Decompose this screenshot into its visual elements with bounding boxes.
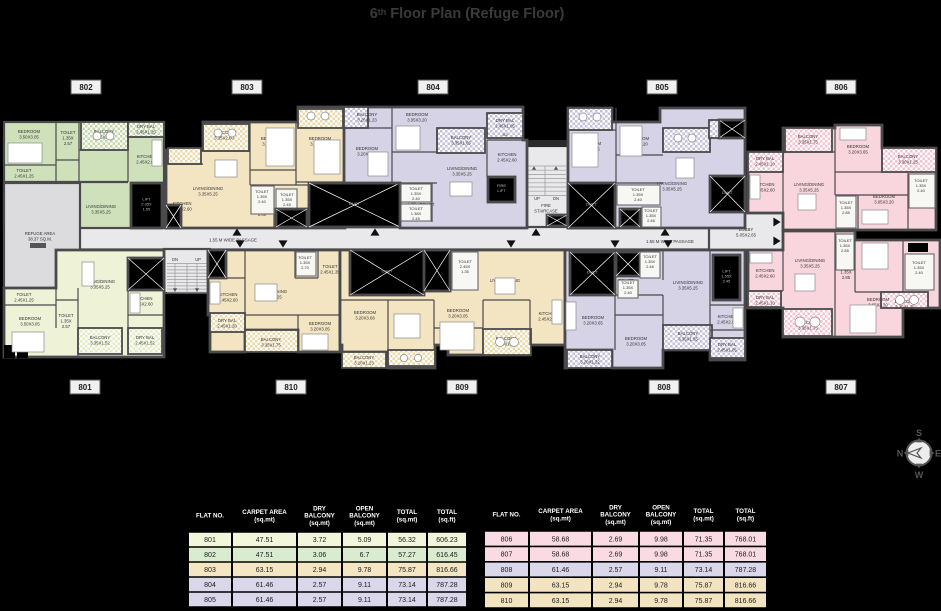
svg-text:3.65X3.20: 3.65X3.20 bbox=[874, 200, 894, 205]
svg-text:D2: D2 bbox=[502, 132, 508, 137]
svg-text:DN: DN bbox=[172, 257, 178, 262]
svg-text:BEDROOM: BEDROOM bbox=[873, 194, 896, 199]
svg-text:DUCT: DUCT bbox=[349, 201, 361, 206]
svg-text:BALCONY: BALCONY bbox=[261, 337, 282, 342]
svg-text:816.66: 816.66 bbox=[735, 583, 757, 590]
svg-text:2.94: 2.94 bbox=[313, 567, 327, 574]
svg-text:9.78: 9.78 bbox=[654, 583, 668, 590]
svg-text:DN: DN bbox=[553, 196, 559, 201]
svg-text:802: 802 bbox=[204, 552, 216, 559]
svg-text:2.45X1.35: 2.45X1.35 bbox=[320, 270, 340, 275]
svg-text:73.14: 73.14 bbox=[398, 597, 416, 604]
svg-text:S: S bbox=[916, 428, 922, 438]
svg-text:2.57: 2.57 bbox=[313, 582, 327, 589]
svg-text:768.01: 768.01 bbox=[735, 536, 757, 543]
svg-text:3.20X3.65: 3.20X3.65 bbox=[583, 321, 603, 326]
svg-text:75.87: 75.87 bbox=[695, 583, 713, 590]
svg-text:(sq.mt): (sq.mt) bbox=[693, 515, 714, 522]
svg-text:2.85: 2.85 bbox=[842, 275, 851, 280]
svg-text:1.55: 1.55 bbox=[143, 207, 152, 212]
svg-text:3.35X5.25: 3.35X5.25 bbox=[678, 286, 698, 291]
svg-text:809: 809 bbox=[455, 383, 469, 392]
svg-text:2.40: 2.40 bbox=[915, 270, 924, 275]
svg-text:3.35X1.65: 3.35X1.65 bbox=[451, 141, 471, 146]
svg-text:3.35X5.25: 3.35X5.25 bbox=[799, 188, 819, 193]
svg-text:(sq.mt): (sq.mt) bbox=[354, 520, 375, 527]
svg-text:2.45X1.10: 2.45X1.10 bbox=[755, 301, 775, 306]
svg-text:3.35X1.52: 3.35X1.52 bbox=[90, 341, 110, 346]
svg-text:63.15: 63.15 bbox=[552, 598, 570, 605]
svg-text:DRY BAL: DRY BAL bbox=[137, 124, 156, 129]
svg-text:802: 802 bbox=[79, 83, 93, 92]
svg-text:3.20X1.22: 3.20X1.22 bbox=[580, 360, 600, 365]
svg-text:768.01: 768.01 bbox=[735, 552, 757, 559]
svg-text:75.87: 75.87 bbox=[398, 567, 416, 574]
svg-text:3.35X5.25: 3.35X5.25 bbox=[198, 192, 218, 197]
svg-text:2.69: 2.69 bbox=[609, 536, 623, 543]
svg-text:DUCT: DUCT bbox=[586, 202, 598, 207]
svg-text:(sq.mt): (sq.mt) bbox=[397, 516, 418, 523]
svg-text:DUCT: DUCT bbox=[587, 270, 599, 275]
svg-text:9.98: 9.98 bbox=[654, 536, 668, 543]
svg-text:2.46: 2.46 bbox=[647, 218, 656, 223]
svg-text:TOTAL: TOTAL bbox=[397, 509, 417, 516]
svg-text:DRY BAL: DRY BAL bbox=[218, 318, 237, 323]
svg-text:LIVING/DINING: LIVING/DINING bbox=[794, 182, 825, 187]
svg-text:806: 806 bbox=[834, 83, 848, 92]
svg-text:LIVING/DINING: LIVING/DINING bbox=[447, 166, 478, 171]
svg-text:BALCONY: BALCONY bbox=[600, 512, 631, 519]
svg-text:804: 804 bbox=[426, 83, 440, 92]
svg-text:58.68: 58.68 bbox=[552, 536, 570, 543]
svg-text:(sq.ft): (sq.ft) bbox=[438, 516, 455, 523]
svg-text:DRY BAL: DRY BAL bbox=[136, 335, 155, 340]
svg-text:3.35X5.25: 3.35X5.25 bbox=[91, 210, 111, 215]
svg-text:73.14: 73.14 bbox=[398, 582, 416, 589]
svg-text:W: W bbox=[915, 470, 924, 480]
svg-text:2.57: 2.57 bbox=[62, 324, 71, 329]
svg-text:(sq.mt): (sq.mt) bbox=[550, 515, 571, 522]
svg-text:808: 808 bbox=[657, 383, 671, 392]
svg-text:TOILET: TOILET bbox=[323, 264, 338, 269]
svg-text:2.46: 2.46 bbox=[646, 264, 655, 269]
svg-text:63.15: 63.15 bbox=[552, 583, 570, 590]
svg-text:DRY BAL: DRY BAL bbox=[756, 295, 775, 300]
svg-text:DUCT: DUCT bbox=[381, 269, 393, 274]
svg-text:BEDROOM: BEDROOM bbox=[356, 146, 379, 151]
svg-text:DRY: DRY bbox=[313, 506, 327, 513]
svg-text:616.45: 616.45 bbox=[436, 552, 458, 559]
svg-text:2.94: 2.94 bbox=[609, 583, 623, 590]
svg-text:2.57: 2.57 bbox=[64, 141, 73, 146]
svg-text:3.35X1.75: 3.35X1.75 bbox=[261, 343, 281, 348]
svg-text:TOILET: TOILET bbox=[61, 130, 76, 135]
svg-text:BEDROOM: BEDROOM bbox=[447, 308, 470, 313]
svg-text:9.11: 9.11 bbox=[358, 597, 371, 604]
svg-text:KITCHEN: KITCHEN bbox=[219, 292, 238, 297]
svg-text:2.45X1.20: 2.45X1.20 bbox=[217, 324, 237, 329]
svg-text:71.35: 71.35 bbox=[695, 552, 713, 559]
svg-text:(sq.mt): (sq.mt) bbox=[309, 520, 330, 527]
svg-text:E: E bbox=[935, 449, 941, 459]
svg-text:BALCONY: BALCONY bbox=[304, 513, 335, 520]
svg-text:56.32: 56.32 bbox=[398, 537, 416, 544]
svg-text:2.45X1.25: 2.45X1.25 bbox=[136, 130, 156, 135]
svg-text:606.23: 606.23 bbox=[436, 537, 458, 544]
svg-text:CARPET AREA: CARPET AREA bbox=[242, 509, 287, 516]
svg-text:47.51: 47.51 bbox=[256, 552, 274, 559]
svg-text:3.20X3.05: 3.20X3.05 bbox=[448, 314, 468, 319]
svg-text:816.66: 816.66 bbox=[735, 598, 757, 605]
svg-text:KITCHEN: KITCHEN bbox=[498, 152, 517, 157]
svg-text:3.30X1.25: 3.30X1.25 bbox=[895, 305, 915, 310]
svg-text:BALCONY: BALCONY bbox=[678, 331, 699, 336]
svg-text:3.20X1.23: 3.20X1.23 bbox=[357, 118, 377, 123]
svg-text:STAIRCASE: STAIRCASE bbox=[534, 209, 558, 214]
svg-text:810: 810 bbox=[501, 598, 513, 605]
svg-text:BALCONY: BALCONY bbox=[357, 112, 378, 117]
svg-text:BALCONY: BALCONY bbox=[349, 513, 380, 520]
svg-text:3.72: 3.72 bbox=[313, 537, 327, 544]
svg-text:LIFT: LIFT bbox=[497, 188, 506, 193]
svg-text:TOTAL: TOTAL bbox=[693, 508, 713, 515]
svg-text:BALCONY: BALCONY bbox=[898, 154, 919, 159]
svg-text:9.78: 9.78 bbox=[358, 567, 372, 574]
svg-text:3.35X5.25: 3.35X5.25 bbox=[800, 264, 820, 269]
svg-text:DRY BAL: DRY BAL bbox=[496, 118, 515, 123]
svg-text:3.20X1.23: 3.20X1.23 bbox=[354, 361, 374, 366]
svg-text:9.11: 9.11 bbox=[654, 567, 667, 574]
svg-text:3.35X1.55: 3.35X1.55 bbox=[678, 337, 698, 342]
svg-text:OPEN: OPEN bbox=[356, 506, 374, 513]
svg-text:806: 806 bbox=[501, 536, 513, 543]
svg-text:803: 803 bbox=[204, 567, 216, 574]
svg-text:1.55 M WIDE PASSAGE: 1.55 M WIDE PASSAGE bbox=[209, 238, 257, 243]
svg-text:61.46: 61.46 bbox=[256, 582, 274, 589]
svg-text:DRY BAL: DRY BAL bbox=[756, 156, 775, 161]
svg-text:57.27: 57.27 bbox=[398, 552, 416, 559]
svg-text:BEDROOM: BEDROOM bbox=[406, 112, 429, 117]
svg-text:BEDROOM: BEDROOM bbox=[18, 129, 41, 134]
svg-text:5.09: 5.09 bbox=[358, 537, 372, 544]
svg-text:(sq.ft): (sq.ft) bbox=[737, 515, 754, 522]
svg-text:2.57: 2.57 bbox=[609, 567, 623, 574]
svg-text:3.35X1.75: 3.35X1.75 bbox=[798, 140, 818, 145]
svg-text:(sq.mt): (sq.mt) bbox=[651, 519, 672, 526]
svg-text:TOILET: TOILET bbox=[59, 313, 74, 318]
svg-text:808: 808 bbox=[501, 567, 513, 574]
svg-text:2.45X2.60: 2.45X2.60 bbox=[755, 274, 775, 279]
svg-text:3.20X3.65: 3.20X3.65 bbox=[848, 150, 868, 155]
svg-text:3.20X3.05: 3.20X3.05 bbox=[310, 327, 330, 332]
svg-text:2.45X1.52: 2.45X1.52 bbox=[135, 341, 155, 346]
svg-text:2.57: 2.57 bbox=[313, 597, 327, 604]
svg-text:73.14: 73.14 bbox=[695, 567, 713, 574]
svg-text:REFUGE AREA: REFUGE AREA bbox=[25, 231, 56, 236]
svg-text:3.50X3.05: 3.50X3.05 bbox=[20, 322, 40, 327]
svg-text:LIVING/DINING: LIVING/DINING bbox=[86, 204, 117, 209]
svg-text:DRY BAL: DRY BAL bbox=[718, 342, 737, 347]
svg-text:1.35: 1.35 bbox=[461, 269, 470, 274]
svg-text:6th Floor Plan (Refuge Floor): 6th Floor Plan (Refuge Floor) bbox=[370, 6, 565, 22]
svg-text:61.46: 61.46 bbox=[256, 597, 274, 604]
svg-text:2.45: 2.45 bbox=[283, 202, 292, 207]
svg-text:FLAT NO.: FLAT NO. bbox=[196, 513, 224, 520]
svg-text:5.05X2.65: 5.05X2.65 bbox=[736, 233, 757, 238]
svg-text:3.35X5.25: 3.35X5.25 bbox=[662, 187, 682, 192]
svg-text:3.20X3.68: 3.20X3.68 bbox=[355, 316, 375, 321]
svg-text:DUCT: DUCT bbox=[722, 190, 734, 195]
svg-text:63.15: 63.15 bbox=[256, 567, 274, 574]
svg-text:BEDROOM: BEDROOM bbox=[309, 321, 332, 326]
svg-text:2.85: 2.85 bbox=[841, 248, 850, 253]
svg-text:LIVING/DINING: LIVING/DINING bbox=[193, 186, 224, 191]
svg-text:58.68: 58.68 bbox=[552, 552, 570, 559]
svg-text:816.66: 816.66 bbox=[436, 567, 458, 574]
svg-text:2.40: 2.40 bbox=[624, 290, 633, 295]
svg-text:BALCONY: BALCONY bbox=[451, 135, 472, 140]
svg-text:3.20X3.05: 3.20X3.05 bbox=[626, 342, 646, 347]
svg-text:(sq.mt): (sq.mt) bbox=[605, 519, 626, 526]
svg-text:2.45X1.25: 2.45X1.25 bbox=[14, 174, 34, 179]
svg-text:2.85: 2.85 bbox=[842, 210, 851, 215]
svg-text:9.98: 9.98 bbox=[654, 552, 668, 559]
svg-text:2.45X1.10: 2.45X1.10 bbox=[755, 162, 775, 167]
svg-text:9.11: 9.11 bbox=[358, 582, 371, 589]
svg-text:2.70: 2.70 bbox=[301, 265, 310, 270]
svg-text:BALCONY: BALCONY bbox=[580, 354, 601, 359]
svg-text:38.37 SQ.M.: 38.37 SQ.M. bbox=[28, 237, 52, 242]
svg-text:75.87: 75.87 bbox=[695, 598, 713, 605]
svg-text:OPEN: OPEN bbox=[652, 505, 670, 512]
svg-text:BEDROOM: BEDROOM bbox=[867, 297, 890, 302]
svg-text:2.45X2.60: 2.45X2.60 bbox=[218, 298, 238, 303]
svg-text:805: 805 bbox=[204, 597, 216, 604]
svg-text:3.30X1.25: 3.30X1.25 bbox=[898, 160, 918, 165]
svg-text:807: 807 bbox=[834, 383, 848, 392]
svg-text:2.69: 2.69 bbox=[609, 552, 623, 559]
svg-text:2.45X1.25: 2.45X1.25 bbox=[14, 298, 34, 303]
svg-text:BALCONY: BALCONY bbox=[798, 134, 819, 139]
svg-text:KITCHEN: KITCHEN bbox=[756, 268, 775, 273]
svg-text:6.7: 6.7 bbox=[360, 552, 370, 559]
svg-text:FIRE: FIRE bbox=[541, 203, 551, 208]
svg-text:2.94: 2.94 bbox=[609, 598, 623, 605]
svg-text:787.28: 787.28 bbox=[436, 582, 458, 589]
svg-text:BALCONY: BALCONY bbox=[90, 335, 111, 340]
svg-text:805: 805 bbox=[655, 83, 669, 92]
svg-text:BALCONY: BALCONY bbox=[354, 355, 375, 360]
svg-text:BEDROOM: BEDROOM bbox=[847, 144, 870, 149]
svg-text:1.35X: 1.35X bbox=[62, 136, 73, 141]
svg-text:787.28: 787.28 bbox=[436, 597, 458, 604]
svg-text:2.45X2.60: 2.45X2.60 bbox=[497, 158, 517, 163]
svg-text:BALCONY: BALCONY bbox=[646, 512, 677, 519]
svg-text:1.35X: 1.35X bbox=[60, 319, 71, 324]
svg-text:CARPET AREA: CARPET AREA bbox=[538, 508, 583, 515]
svg-text:2.45X1.05: 2.45X1.05 bbox=[717, 348, 737, 353]
svg-text:61.46: 61.46 bbox=[552, 567, 570, 574]
svg-text:810: 810 bbox=[284, 383, 298, 392]
svg-text:(sq.mt): (sq.mt) bbox=[254, 516, 275, 523]
svg-text:2.40: 2.40 bbox=[258, 199, 267, 204]
svg-text:801: 801 bbox=[204, 537, 216, 544]
svg-text:N: N bbox=[897, 449, 904, 459]
svg-text:BEDROOM: BEDROOM bbox=[19, 316, 42, 321]
svg-text:2.40: 2.40 bbox=[634, 197, 643, 202]
svg-text:2.40: 2.40 bbox=[917, 188, 926, 193]
svg-text:809: 809 bbox=[501, 583, 513, 590]
svg-text:2.45: 2.45 bbox=[723, 279, 732, 284]
svg-text:TOTAL: TOTAL bbox=[437, 509, 457, 516]
svg-text:3.50X3.05: 3.50X3.05 bbox=[19, 135, 39, 140]
svg-text:804: 804 bbox=[204, 582, 216, 589]
svg-text:3.35X5.25: 3.35X5.25 bbox=[452, 172, 472, 177]
svg-text:FLAT NO.: FLAT NO. bbox=[492, 512, 520, 519]
svg-text:2.40: 2.40 bbox=[412, 196, 421, 201]
svg-text:BEDROOM: BEDROOM bbox=[582, 315, 605, 320]
svg-text:2.45X1.05: 2.45X1.05 bbox=[495, 124, 515, 129]
svg-text:DRY: DRY bbox=[609, 505, 623, 512]
svg-text:UP: UP bbox=[195, 257, 201, 262]
svg-text:807: 807 bbox=[501, 552, 513, 559]
svg-text:803: 803 bbox=[240, 83, 254, 92]
svg-text:LIVING/DINING: LIVING/DINING bbox=[795, 258, 826, 263]
svg-text:UP: UP bbox=[534, 196, 540, 201]
svg-text:BEDROOM: BEDROOM bbox=[625, 336, 648, 341]
svg-text:LIVING/DINING: LIVING/DINING bbox=[673, 280, 704, 285]
svg-text:47.51: 47.51 bbox=[256, 537, 274, 544]
svg-text:71.35: 71.35 bbox=[695, 536, 713, 543]
svg-text:801: 801 bbox=[78, 383, 92, 392]
svg-text:TOILET: TOILET bbox=[17, 292, 32, 297]
svg-text:TOTAL: TOTAL bbox=[735, 508, 755, 515]
svg-text:TOILET: TOILET bbox=[17, 168, 32, 173]
svg-text:3.05X3.20: 3.05X3.20 bbox=[407, 118, 427, 123]
svg-text:787.28: 787.28 bbox=[735, 567, 757, 574]
svg-text:2.45: 2.45 bbox=[412, 216, 421, 221]
svg-text:9.78: 9.78 bbox=[654, 598, 668, 605]
svg-text:LIVING/DINING: LIVING/DINING bbox=[657, 181, 688, 186]
svg-text:BEDROOM: BEDROOM bbox=[354, 310, 377, 315]
svg-text:3.06: 3.06 bbox=[313, 552, 327, 559]
